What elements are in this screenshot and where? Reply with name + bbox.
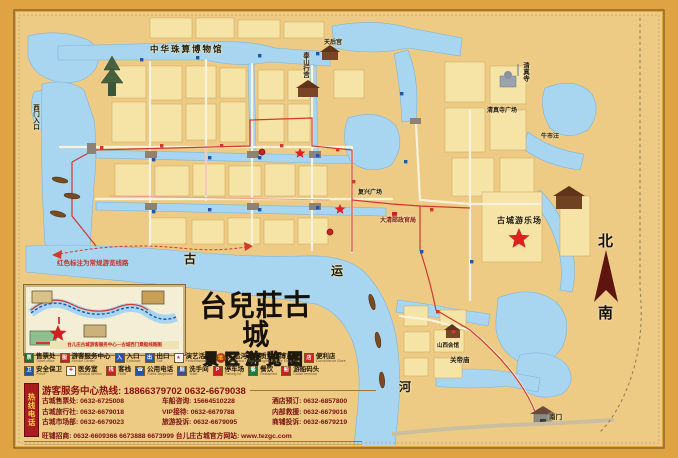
legend-item: 出出口Exit <box>145 353 170 364</box>
public-telephone-icon: ☎ <box>135 366 145 376</box>
hotline-entry: 古城售票处: 0632-6725008 <box>42 397 162 408</box>
label-taishan-palace: 泰山行宫 <box>301 52 308 78</box>
expo-park-icon <box>327 229 333 235</box>
legend-item: 厕洗手间Toilet <box>177 366 209 377</box>
performance-icon: ★ <box>174 353 184 363</box>
map-poster: 中华珠算博物馆 清真寺 清真寺广场 牛市汪 古城游乐场 泰山行宫 天后宫 复兴广… <box>0 0 678 458</box>
expo-park-icon: 运 <box>216 353 226 363</box>
entrance-icon: 入 <box>115 353 125 363</box>
hotline-main-line: 游客服务中心热线: 18866379702 0632-6679038 <box>42 383 376 397</box>
label-canal-char-gu: 古 <box>184 253 196 265</box>
hotel-icon: 栈 <box>106 366 116 376</box>
legend-sublabel: Convenience Store <box>316 360 346 364</box>
legend-item: 运大运河非物质文化博览园The Grand Canal Intangible C… <box>216 353 300 364</box>
legend-sublabel: Police <box>36 373 62 377</box>
inset-route-map: 台儿庄古城游客服务中心—古城西门乘船线路图 <box>24 285 185 355</box>
hotline-entry: 商铺投诉: 0632-6679219 <box>272 418 376 429</box>
hotline-section: 热线电话 游客服务中心热线: 18866379702 0632-6679038 … <box>24 383 362 440</box>
inset-art <box>26 287 179 349</box>
legend-item: ☎公用电话Public telephone <box>135 366 173 377</box>
legend-sublabel: The Grand Canal Intangible Culture Expo … <box>228 360 300 364</box>
expo-park-icon <box>259 149 265 155</box>
label-amusement-park: 古城游乐场 <box>497 217 542 225</box>
service-center-icon: 服 <box>60 353 70 363</box>
legend-row-2: 卫安全保卫Police ✚医务室Medical service 栈客栈Hotel… <box>24 366 360 377</box>
legend-sublabel: Medical service <box>78 373 102 377</box>
legend-item: 餐餐饮Restaurant <box>248 366 277 377</box>
label-shanxi-guild: 山西会馆 <box>437 344 459 350</box>
label-tianhou-temple: 天后宫 <box>324 40 342 46</box>
hotline-entry: 车船咨询: 15664510228 <box>162 397 272 408</box>
legend-item: 卫安全保卫Police <box>24 366 62 377</box>
legend-item: 船游船码头Cruise terminal <box>281 366 319 377</box>
hotline-tab: 热线电话 <box>24 383 39 437</box>
legend-item: 栈客栈Hotel <box>106 366 131 377</box>
legend-sublabel: Toilet <box>189 373 209 377</box>
legend-item: 票售票处Ticket office <box>24 353 56 364</box>
cruise-terminal-icon: 船 <box>281 366 291 376</box>
label-niushiwang: 牛市汪 <box>541 134 559 140</box>
compass-south-label: 南 <box>598 306 613 321</box>
hotline-entry: 酒店预订: 0632-6857800 <box>272 397 376 408</box>
toilet-icon: 厕 <box>177 366 187 376</box>
parking-icon: P <box>213 366 223 376</box>
police-icon: 卫 <box>24 366 34 376</box>
hotline-entry: VIP接待: 0632-6679788 <box>162 408 272 419</box>
label-qing-post-office: 大清邮政官局 <box>380 218 416 224</box>
legend: 票售票处Ticket office 服游客服务中心Service Center … <box>24 353 360 378</box>
label-fuxing-square: 复兴广场 <box>358 190 382 196</box>
exit-icon: 出 <box>145 353 155 363</box>
hotline-grid: 古城售票处: 0632-6725008 车船咨询: 15664510228 酒店… <box>42 397 376 429</box>
label-canal-char-he: 河 <box>399 381 411 393</box>
restaurant-icon: 餐 <box>248 366 258 376</box>
legend-sublabel: Performances <box>186 360 212 364</box>
convenience-store-icon: 店 <box>304 353 314 363</box>
legend-item: ★演艺活动Performances <box>174 353 212 364</box>
hotline-main-text: 游客服务中心热线: 18866379702 0632-6679038 <box>42 383 246 397</box>
legend-sublabel: Entrance <box>127 360 141 364</box>
label-south-gate: 南门 <box>549 415 562 422</box>
legend-sublabel: Restaurant <box>260 373 277 377</box>
post-office-icon <box>392 212 397 217</box>
ticket-office-icon: 票 <box>24 353 34 363</box>
page-title: 台兒莊古城 <box>188 291 325 352</box>
hotline-entry: 古城市场部: 0632-6679023 <box>42 418 162 429</box>
hotline-last-line: 旺铺招商: 0632-6609366 6673888 6673999 台儿庄古城… <box>42 430 376 440</box>
legend-sublabel: Parking lot <box>225 373 245 377</box>
medical-icon: ✚ <box>66 366 76 376</box>
legend-sublabel: Exit <box>157 360 170 364</box>
legend-item: ✚医务室Medical service <box>66 366 102 377</box>
legend-item: 入入口Entrance <box>115 353 141 364</box>
label-mosque: 清真寺 <box>521 62 528 82</box>
compass-north-label: 北 <box>598 234 613 249</box>
label-canal-char-yun: 运 <box>331 265 343 277</box>
divider <box>250 390 376 391</box>
label-mosque-square: 清真寺广场 <box>487 108 517 114</box>
legend-row-1: 票售票处Ticket office 服游客服务中心Service Center … <box>24 353 360 364</box>
label-abacus-museum: 中华珠算博物馆 <box>150 45 224 54</box>
hotline-entry: 古城旅行社: 0632-6679018 <box>42 408 162 419</box>
legend-sublabel: Cruise terminal <box>293 373 319 377</box>
legend-sublabel: Public telephone <box>147 373 173 377</box>
legend-sublabel: Ticket office <box>36 360 56 364</box>
label-west-gate-entrance: 西门入口 <box>31 104 38 130</box>
legend-item: P停车场Parking lot <box>213 366 245 377</box>
route-note: 红色标注为常规游览线路 <box>57 261 129 268</box>
label-guandi-temple: 关帝庙 <box>450 358 470 365</box>
legend-sublabel: Hotel <box>118 373 131 377</box>
inset-caption: 台儿庄古城游客服务中心—古城西门乘船线路图 <box>50 341 179 349</box>
legend-item: 店便利店Convenience Store <box>304 353 346 364</box>
bottom-rule <box>24 441 362 445</box>
hotline-entry: 旅游投诉: 0632-6679095 <box>162 418 272 429</box>
legend-sublabel: Service Center <box>72 360 111 364</box>
hotline-entry: 内部救援: 0632-6679016 <box>272 408 376 419</box>
legend-item: 服游客服务中心Service Center <box>60 353 111 364</box>
